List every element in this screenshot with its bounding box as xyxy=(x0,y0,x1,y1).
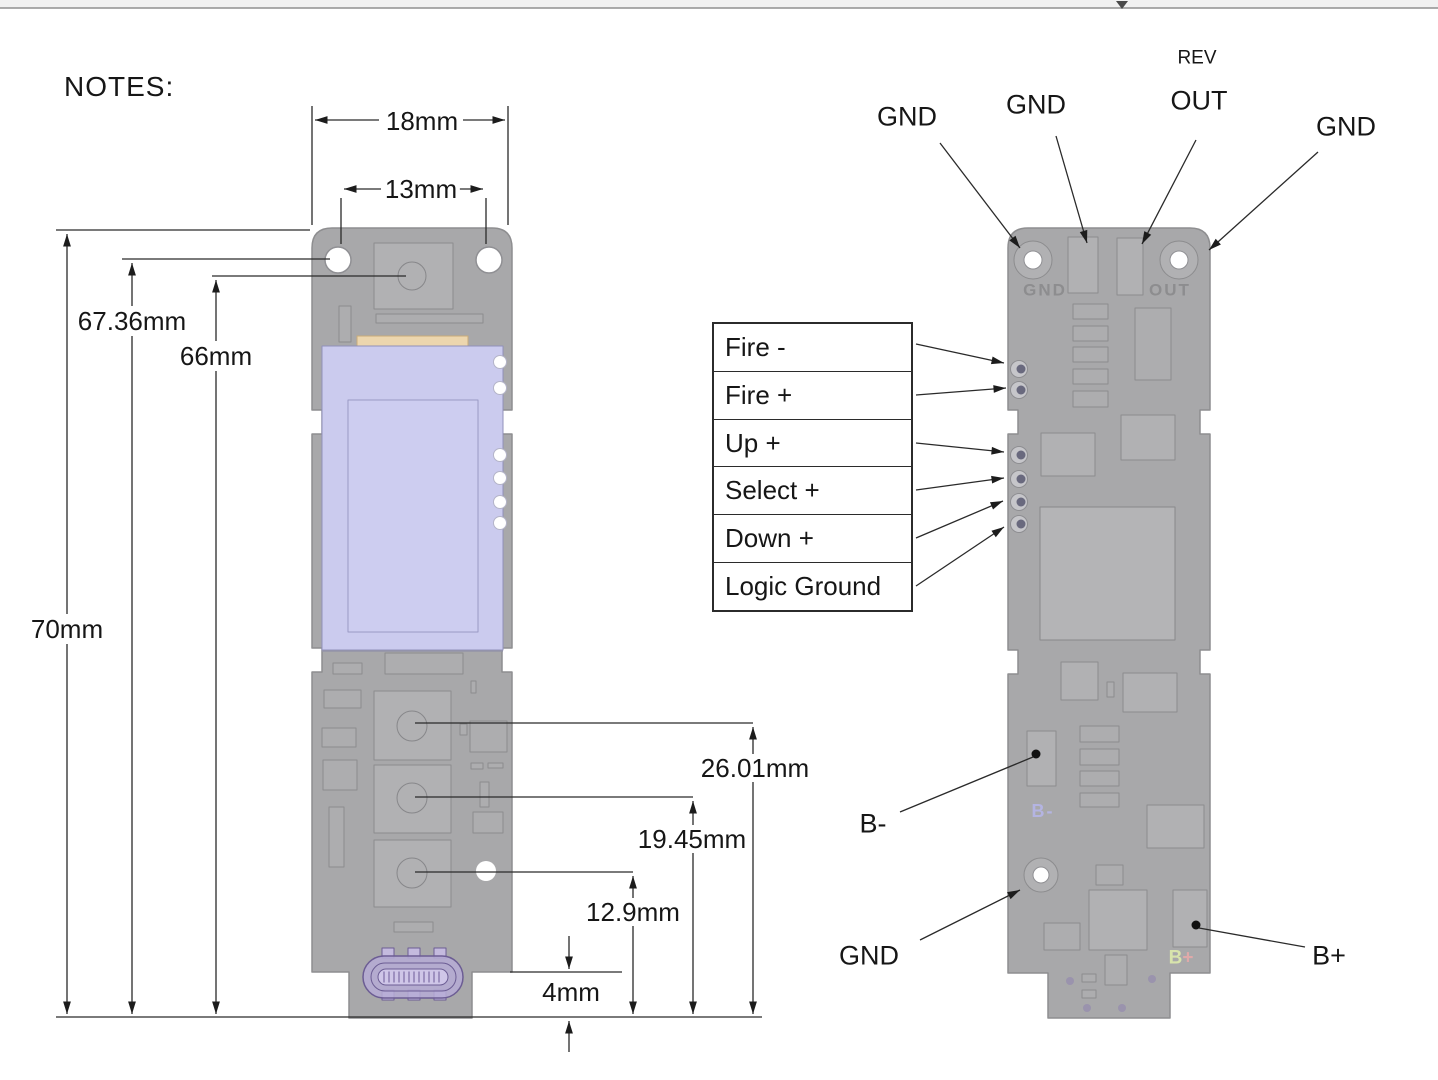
silkscreen-b-plus-sign: + xyxy=(1182,948,1193,969)
passive-component xyxy=(471,763,483,769)
dim-height-total: 70mm xyxy=(28,615,106,643)
down-button-dome xyxy=(397,858,427,888)
dim-height-btn1: 26.01mm xyxy=(698,754,812,782)
passive-component xyxy=(323,760,357,790)
dim-height-hole: 67.36mm xyxy=(75,307,189,335)
passive-component xyxy=(1121,415,1175,460)
dim-height-usb: 4mm xyxy=(539,978,603,1006)
up-button-dome xyxy=(397,711,427,741)
b-minus-pad xyxy=(1027,731,1056,786)
callout-b-plus: B+ xyxy=(1312,943,1346,970)
passive-component xyxy=(1089,890,1147,950)
out-pad xyxy=(1117,238,1143,295)
pin-table-row: Fire + xyxy=(714,371,911,419)
passive-component xyxy=(394,922,433,932)
dim-board-width: 18mm xyxy=(383,107,461,135)
silkscreen-b-plus-b: B xyxy=(1169,948,1183,969)
out-hole xyxy=(1170,251,1188,269)
passive-component xyxy=(1107,682,1114,697)
callout-b-minus: B- xyxy=(860,811,887,838)
callout-gnd-right: GND xyxy=(1316,114,1376,141)
callout-gnd-mid: GND xyxy=(1006,92,1066,119)
passive-component xyxy=(1147,805,1204,848)
callout-gnd-left: GND xyxy=(877,104,937,131)
pin-table-row: Logic Ground xyxy=(714,562,911,610)
callout-rev: REV xyxy=(1177,49,1216,68)
display-active-area xyxy=(348,400,478,632)
passive-component-column xyxy=(1073,304,1108,407)
left-board-hole xyxy=(476,247,502,273)
right-board xyxy=(1008,228,1210,1018)
silkscreen-gnd: GND xyxy=(1023,282,1067,299)
pin-table-row: Down + xyxy=(714,514,911,562)
select-button-dome xyxy=(397,783,427,813)
pin-table: Fire - Fire + Up + Select + Down + Logic… xyxy=(712,322,913,612)
passive-component xyxy=(471,681,476,693)
passive-component xyxy=(322,728,356,747)
passive-component xyxy=(1082,990,1096,998)
flex-connector xyxy=(357,336,468,347)
passive-component xyxy=(333,663,362,674)
top-strip xyxy=(0,0,1438,8)
pin-table-row: Select + xyxy=(714,466,911,514)
pin-label-select-plus: Select + xyxy=(725,475,820,506)
passive-component xyxy=(470,721,507,752)
silkscreen-b-minus: B- xyxy=(1032,802,1055,820)
pin-table-row: Up + xyxy=(714,419,911,467)
passive-component xyxy=(329,807,344,867)
diagram-canvas: NOTES: 18mm 13mm 67.36mm 66mm 70mm 26.01… xyxy=(0,0,1438,1080)
main-chip xyxy=(1040,507,1175,640)
gnd-hole xyxy=(1024,251,1042,269)
passive-component xyxy=(376,314,483,323)
left-board-hole xyxy=(325,247,351,273)
callout-out: OUT xyxy=(1171,88,1228,115)
board-via-hole xyxy=(476,861,496,881)
callout-gnd-bottom: GND xyxy=(839,943,899,970)
gnd-pad xyxy=(1068,237,1098,293)
passive-component xyxy=(480,782,489,807)
left-board xyxy=(312,228,512,1018)
display-connector xyxy=(385,653,463,674)
pin-label-down-plus: Down + xyxy=(725,523,814,554)
dim-height-btn3: 12.9mm xyxy=(583,898,683,926)
notes-heading: NOTES: xyxy=(64,73,174,101)
dim-height-btn2: 19.45mm xyxy=(635,825,749,853)
pin-table-row: Fire - xyxy=(714,324,911,371)
dim-hole-spacing: 13mm xyxy=(382,175,460,203)
pin-label-fire-plus: Fire + xyxy=(725,380,792,411)
passive-component xyxy=(488,763,503,768)
passive-component xyxy=(1061,662,1098,700)
silkscreen-b-plus: B+ xyxy=(1169,949,1194,968)
passive-component xyxy=(1105,955,1127,985)
passive-component xyxy=(473,812,503,833)
b-plus-pad xyxy=(1173,890,1207,947)
pin-label-logic-ground: Logic Ground xyxy=(725,571,881,602)
passive-component xyxy=(460,724,467,735)
passive-component xyxy=(1096,865,1123,885)
passive-component xyxy=(1082,974,1096,982)
passive-component xyxy=(1044,923,1080,950)
passive-component xyxy=(1123,673,1177,712)
silkscreen-out: OUT xyxy=(1149,282,1191,299)
passive-component xyxy=(1041,433,1095,476)
bottom-gnd-hole xyxy=(1033,867,1049,883)
pin-label-up-plus: Up + xyxy=(725,428,781,459)
passive-component xyxy=(1135,308,1171,380)
passive-component xyxy=(324,690,361,708)
passive-component xyxy=(339,306,351,342)
dim-height-button-top: 66mm xyxy=(177,342,255,370)
pin-label-fire-minus: Fire - xyxy=(725,332,786,363)
